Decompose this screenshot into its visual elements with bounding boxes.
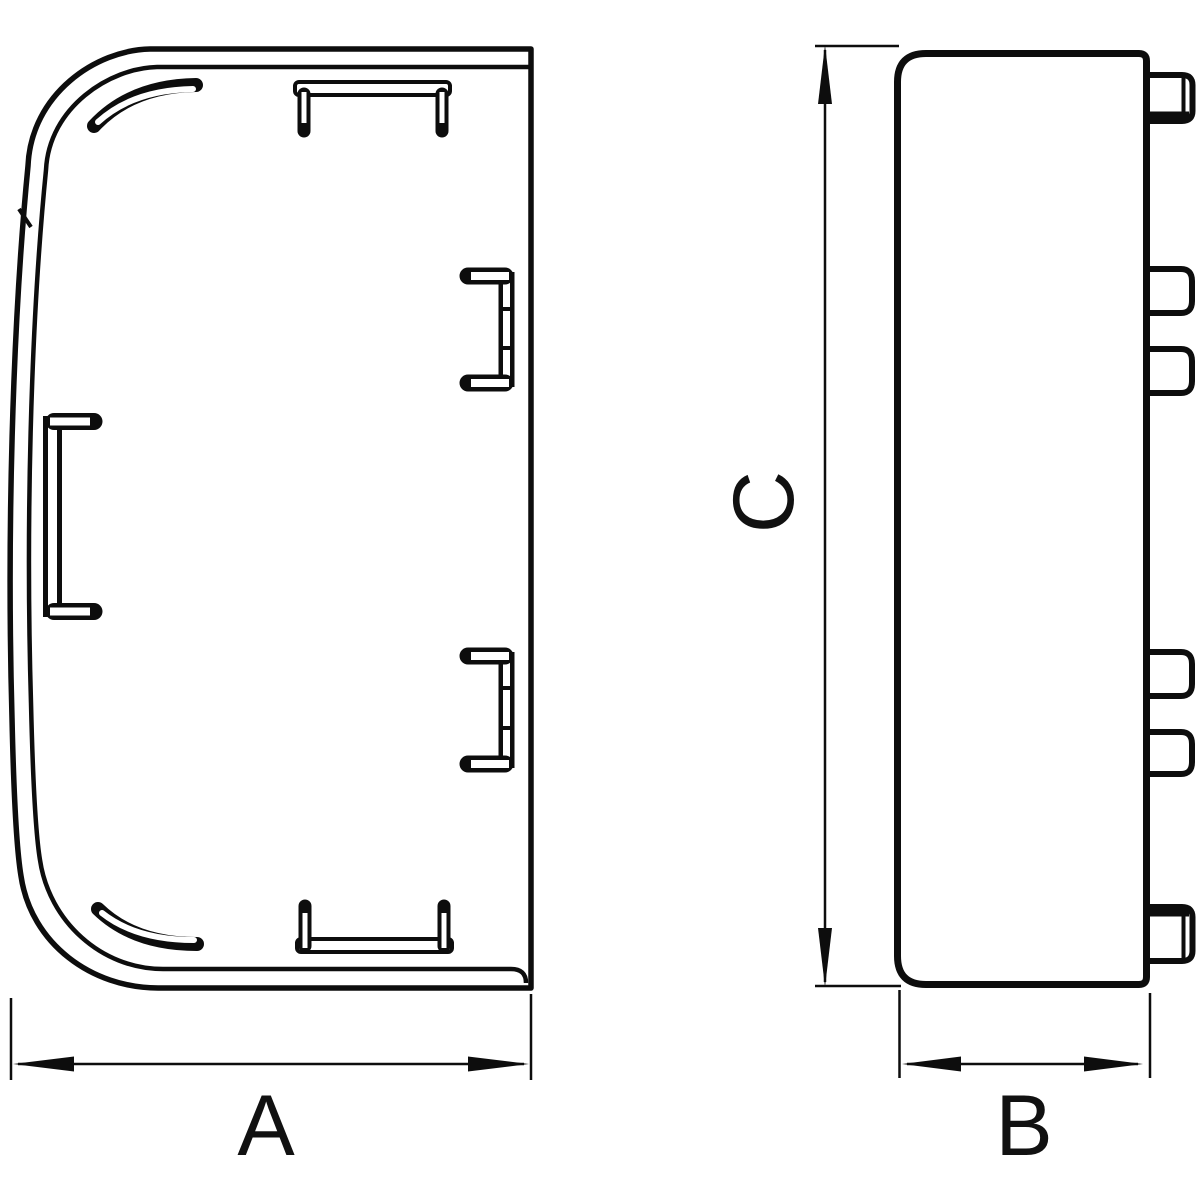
side-tab-3 <box>1146 349 1192 393</box>
dimension-a-label: A <box>237 1078 295 1174</box>
drawing-canvas: A C B <box>0 0 1200 1200</box>
corner-rib-top <box>94 85 196 126</box>
left-clip <box>50 416 94 617</box>
front-view-outer-outline <box>10 49 531 988</box>
front-view-inner-rim <box>29 67 531 983</box>
right-clip-lower <box>468 652 514 768</box>
bottom-clip-bar <box>297 939 452 952</box>
top-clip <box>295 82 450 131</box>
top-clip-bar <box>295 82 450 95</box>
side-view-body <box>898 54 1147 985</box>
dimension-a: A <box>11 994 531 1174</box>
side-view <box>898 54 1193 985</box>
dim-c-arrowhead-bottom <box>818 928 832 987</box>
right-clip-upper <box>468 272 514 387</box>
side-tab-5 <box>1146 732 1192 774</box>
dim-b-arrowhead-right <box>1084 1057 1143 1072</box>
side-tab-2 <box>1146 269 1192 313</box>
dimension-c-label: C <box>716 471 812 533</box>
dim-a-arrowhead-left <box>13 1057 74 1072</box>
dim-a-arrowhead-right <box>468 1057 529 1072</box>
side-tab-4 <box>1146 652 1192 696</box>
front-view <box>10 49 531 988</box>
dimension-b-label: B <box>995 1078 1052 1174</box>
bottom-clip <box>297 906 452 952</box>
technical-drawing-svg: A C B <box>0 0 1200 1200</box>
dim-b-arrowhead-left <box>902 1057 961 1072</box>
dim-c-arrowhead-top <box>818 45 832 104</box>
dimension-c: C <box>716 45 901 987</box>
dimension-b: B <box>900 990 1151 1174</box>
corner-rib-bottom <box>98 909 197 944</box>
